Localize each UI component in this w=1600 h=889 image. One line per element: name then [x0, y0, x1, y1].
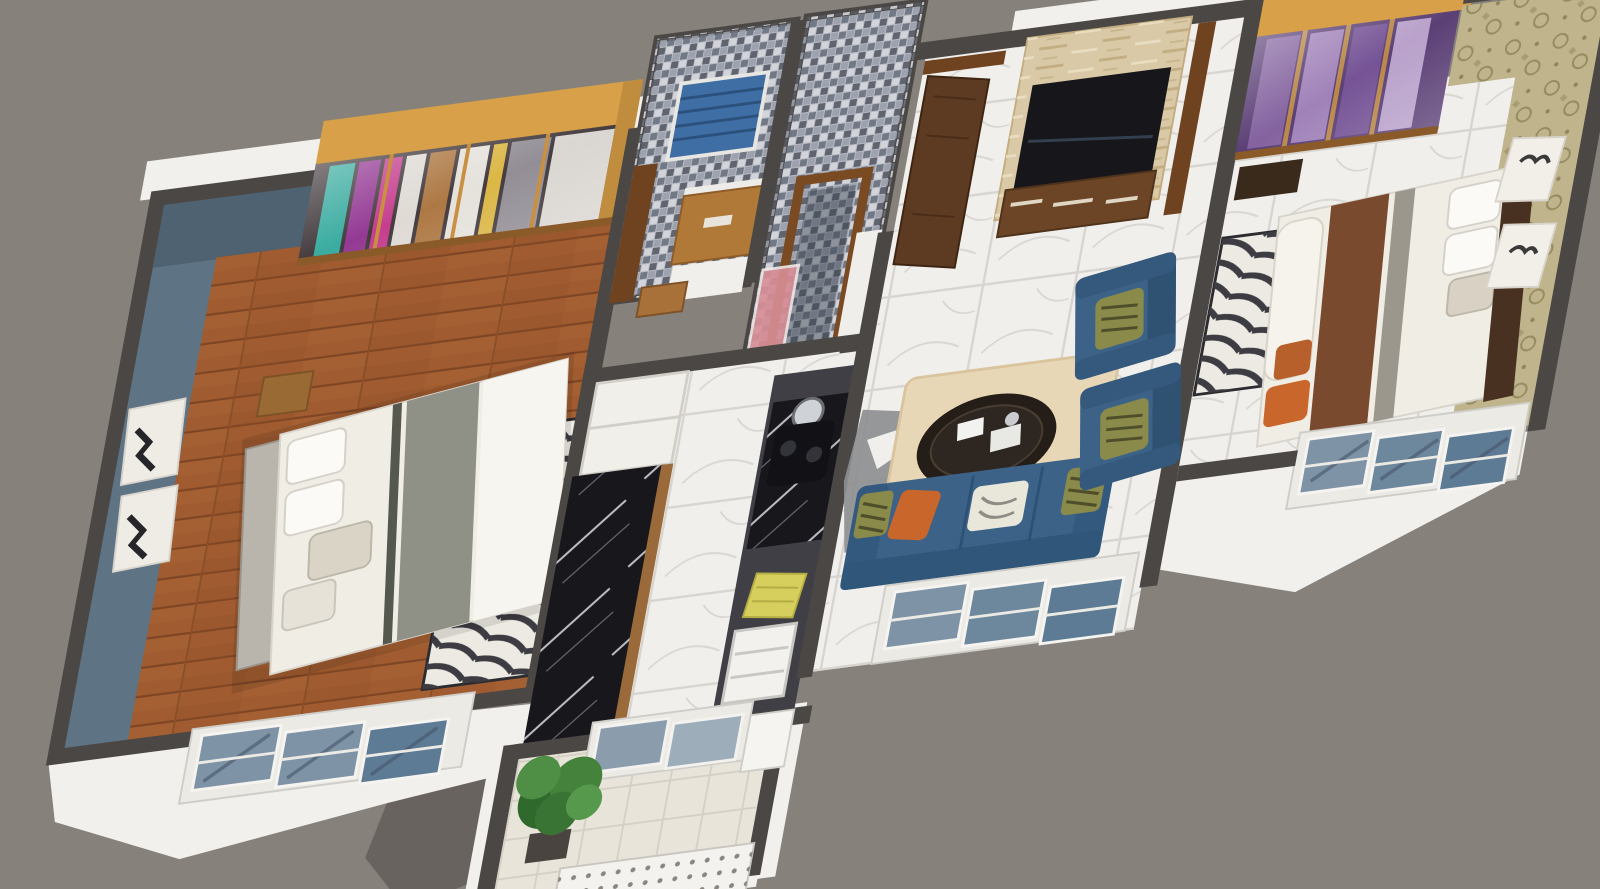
window-pane — [666, 714, 744, 768]
bath1-stool — [636, 282, 687, 317]
nightstand — [257, 371, 314, 417]
step-stool — [722, 623, 797, 704]
floorplan-svg — [0, 0, 1600, 889]
bed-runner — [397, 382, 480, 641]
floorplan-3d-render — [0, 0, 1600, 889]
window-pane — [591, 718, 669, 772]
art-frame — [121, 398, 186, 485]
